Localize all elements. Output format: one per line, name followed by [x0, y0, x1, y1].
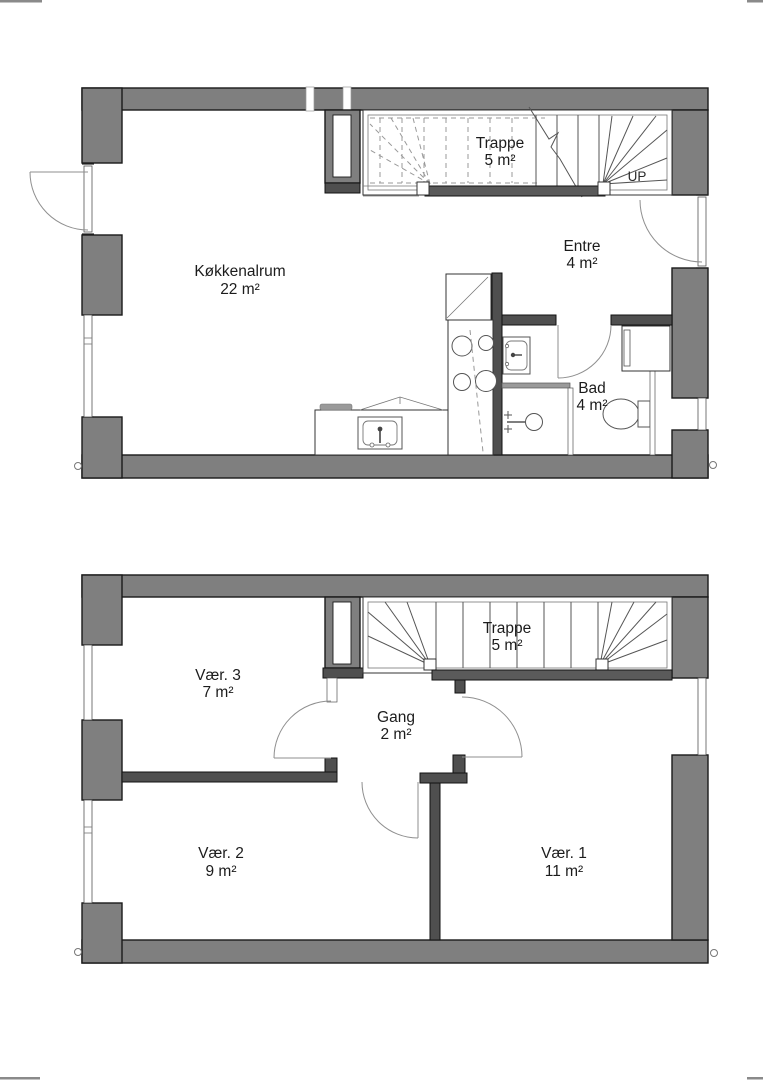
duct-shaft [325, 110, 360, 193]
stair-guard-wall [425, 186, 605, 196]
kitchen [315, 274, 497, 455]
interior-walls-upper [122, 755, 467, 940]
room-label-trappe-gf: Trappe [476, 135, 525, 152]
downspout [75, 949, 82, 956]
entrance-door [640, 195, 708, 268]
counter-flap-lines [360, 397, 443, 410]
room-label-gang: Gang [377, 709, 415, 726]
room-area-bad: 4 m² [577, 397, 608, 414]
door-vaer1 [462, 697, 522, 757]
bathroom-door [558, 325, 611, 378]
room-label-vaer2: Vær. 2 [198, 845, 244, 862]
window-left-upper-1 [82, 645, 94, 720]
window-right-upper [696, 678, 708, 755]
duct-shaft-upper [323, 597, 363, 702]
room-area-trappe-uf: 5 m² [492, 637, 523, 654]
room-area-vaer3: 7 m² [203, 684, 234, 701]
window-left-ground [82, 315, 94, 417]
window-left-upper-2 [82, 800, 94, 903]
room-area-kokkenalrum: 22 m² [220, 281, 260, 298]
floor-plan-page: Køkkenalrum 22 m² Trappe 5 m² UP Entre 4… [0, 0, 763, 1080]
room-area-trappe-gf: 5 m² [485, 152, 516, 169]
fridge [446, 274, 491, 320]
room-area-entre: 4 m² [567, 255, 598, 272]
room-label-trappe-uf: Trappe [483, 620, 532, 637]
downspout [75, 463, 82, 470]
toilet [603, 399, 650, 429]
stair-guard-wall-upper [432, 670, 672, 680]
room-label-vaer3: Vær. 3 [195, 667, 241, 684]
door-vaer2 [362, 782, 418, 838]
shower [502, 383, 573, 455]
downspout [711, 950, 718, 957]
kitchen-sink [358, 417, 402, 449]
room-label-vaer1: Vær. 1 [541, 845, 587, 862]
room-label-bad: Bad [578, 380, 606, 397]
door-vaer3 [274, 701, 331, 758]
counter-appliance [320, 404, 352, 410]
utility-cabinet [622, 326, 670, 371]
bathroom-sink [503, 337, 530, 374]
upper-floor-plan: Vær. 3 7 m² Trappe 5 m² Gang 2 m² Vær. 2… [75, 575, 718, 963]
ground-floor-plan: Køkkenalrum 22 m² Trappe 5 m² UP Entre 4… [30, 87, 717, 478]
floor-plan-drawing: Køkkenalrum 22 m² Trappe 5 m² UP Entre 4… [0, 0, 763, 1080]
room-area-vaer1: 11 m² [545, 863, 583, 880]
window-right-ground [696, 398, 708, 430]
toilet-partition [650, 370, 655, 455]
downspout [710, 462, 717, 469]
room-area-vaer2: 9 m² [206, 863, 237, 880]
room-area-gang: 2 m² [381, 726, 412, 743]
staircase-ground [363, 107, 672, 197]
room-label-entre: Entre [563, 238, 600, 255]
room-label-kokkenalrum: Køkkenalrum [194, 263, 285, 280]
exterior-door-left [30, 164, 94, 234]
stair-up-label: UP [628, 169, 647, 184]
